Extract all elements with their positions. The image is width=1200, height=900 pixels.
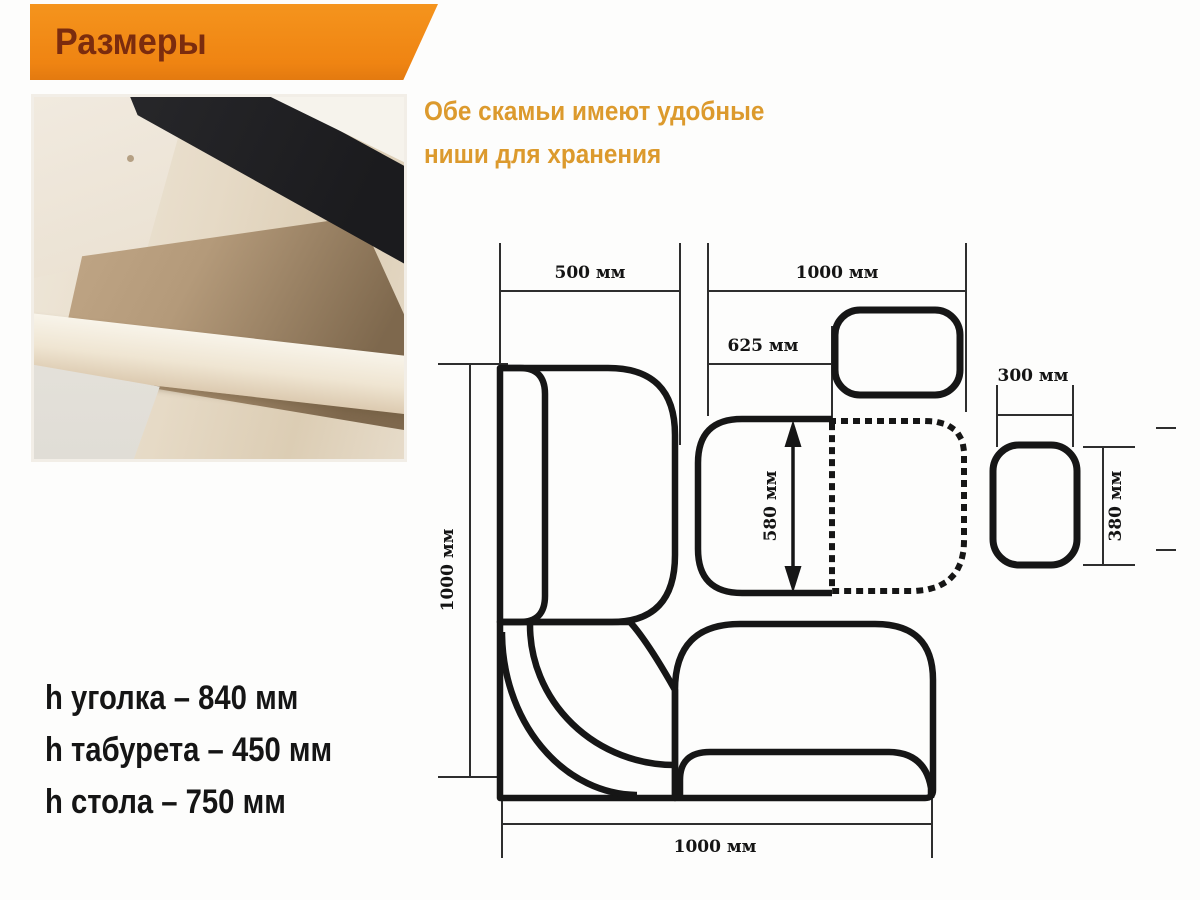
- arrow-up-icon: [785, 420, 802, 447]
- dimension-diagram: 500 мм 1000 мм 625 мм 1000 мм 300 мм 100…: [0, 0, 1200, 900]
- dimension-lines: [438, 243, 1176, 858]
- table-dashed-outline: [832, 421, 964, 591]
- label-1000mm-top: 1000 мм: [796, 263, 879, 283]
- stool-side-outline: [993, 445, 1077, 565]
- arrow-down-icon: [785, 566, 802, 593]
- label-500mm: 500 мм: [555, 263, 626, 283]
- label-1000mm-left: 1000 мм: [438, 528, 458, 611]
- bottom-bench-backrest: [680, 752, 931, 798]
- left-bench-backrest: [500, 368, 545, 622]
- page: Размеры Обе скамьи имеют удобные ниши дл…: [0, 0, 1200, 900]
- furniture-outlines: [500, 310, 1077, 798]
- label-380mm: 380 мм: [1106, 470, 1126, 541]
- corner-section-outline: [500, 622, 675, 798]
- left-bench-outline: [500, 368, 675, 622]
- corner-fan-arc: [502, 632, 637, 795]
- corner-fan-arc: [530, 625, 675, 765]
- label-580mm: 580 мм: [761, 470, 781, 541]
- dimension-labels: 500 мм 1000 мм 625 мм 1000 мм 300 мм 100…: [438, 263, 1126, 857]
- label-1000mm-bottom: 1000 мм: [674, 837, 757, 857]
- seat-depth-arrow: [785, 420, 802, 593]
- stool-top-outline: [835, 310, 960, 395]
- label-300mm: 300 мм: [998, 366, 1069, 386]
- bottom-bench-outline: [675, 624, 933, 798]
- label-625mm: 625 мм: [728, 336, 799, 356]
